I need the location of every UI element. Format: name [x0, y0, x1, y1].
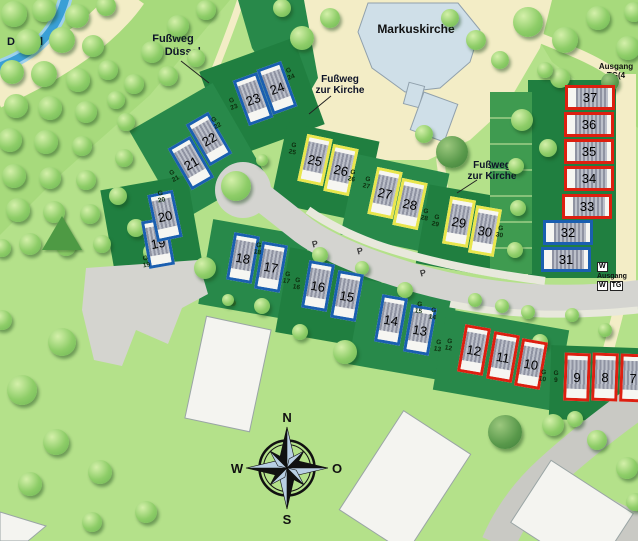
tree [65, 4, 89, 28]
garage-label: G 30 [493, 224, 507, 240]
tree [466, 30, 486, 50]
tree [436, 136, 468, 168]
tree [135, 501, 157, 523]
house-number: 34 [567, 169, 611, 188]
house-number: 25 [301, 137, 329, 182]
garage-label: G 17 [280, 270, 294, 286]
tree [2, 164, 26, 188]
exit-bottom-ausgang: Ausgang [597, 272, 638, 281]
tree [221, 171, 251, 201]
house-plot-34[interactable]: 34 [564, 166, 614, 191]
tree [586, 6, 610, 30]
tree [552, 27, 578, 53]
tree [495, 299, 509, 313]
tree [468, 293, 482, 307]
house-plot-35[interactable]: 35 [564, 139, 614, 164]
compass-north-label: N [282, 410, 291, 425]
tree [616, 36, 638, 60]
tree [320, 8, 340, 28]
tree [567, 411, 583, 427]
house-number: 31 [544, 250, 588, 269]
garage-label: G 19 [139, 254, 153, 270]
tree [15, 29, 41, 55]
tree [187, 49, 205, 67]
tree [82, 35, 104, 57]
house-number: 9 [566, 356, 587, 399]
tree [72, 136, 92, 156]
house-number: 35 [567, 142, 611, 161]
tree [34, 130, 58, 154]
footpath-church-upper-label: Fußweg zur Kirche [300, 74, 380, 96]
house-plot-32[interactable]: 32 [543, 220, 593, 245]
tree [80, 204, 100, 224]
house-number: 33 [565, 197, 609, 216]
tree [598, 323, 612, 337]
tree [508, 158, 524, 174]
tree [616, 457, 638, 479]
tree [158, 66, 178, 86]
house-number: 12 [461, 328, 488, 373]
tree [254, 298, 270, 314]
tree [290, 26, 314, 50]
tree [38, 96, 62, 120]
tree [565, 308, 579, 322]
garage-label: G 13 [431, 338, 445, 354]
w-marker-1: W [597, 262, 608, 272]
tree [167, 15, 189, 37]
tree [124, 74, 144, 94]
house-number: 29 [446, 200, 473, 245]
house-plot-9[interactable]: 9 [563, 353, 591, 402]
tree [141, 41, 163, 63]
garage-label: G 20 [154, 189, 168, 205]
tg-marker: TG [610, 281, 624, 291]
house-plot-37[interactable]: 37 [565, 85, 615, 110]
house-plot-7[interactable]: 7 [619, 354, 638, 403]
tree [333, 340, 357, 364]
tree [48, 328, 76, 356]
tree [7, 375, 37, 405]
tree [488, 415, 522, 449]
tree [256, 154, 268, 166]
house-number: 36 [567, 115, 611, 134]
tree [521, 305, 535, 319]
exit-top-line1: Ausgang [594, 62, 638, 71]
exit-bottom-right-label: W Ausgang W TG [597, 262, 638, 291]
tree [626, 493, 638, 511]
tree [510, 200, 526, 216]
tree [587, 430, 607, 450]
house-plot-31[interactable]: 31 [541, 247, 591, 272]
tree [31, 61, 57, 87]
tree [109, 187, 127, 205]
tree [4, 94, 28, 118]
tree [539, 139, 557, 157]
tree [18, 472, 42, 496]
tree [39, 167, 61, 189]
garage-label: G 10 [536, 368, 550, 384]
site-plan-map: Düssel Fußweg zur Düssel Markuskirche Fu… [0, 0, 638, 541]
tree [1, 1, 27, 27]
compass-south-label: S [283, 512, 292, 527]
tree [537, 62, 553, 78]
tree [107, 91, 125, 109]
house-plot-8[interactable]: 8 [591, 353, 619, 402]
house-number: 32 [546, 223, 590, 242]
tree [19, 233, 41, 255]
tree [117, 113, 135, 131]
house-plot-33[interactable]: 33 [562, 194, 612, 219]
tree [511, 109, 533, 131]
tree [88, 460, 112, 484]
tree [66, 68, 90, 92]
tree [93, 235, 111, 253]
conifer-tree [42, 216, 82, 250]
tree [98, 60, 118, 80]
footpath-church-upper-line2: zur Kirche [300, 85, 380, 96]
tree [542, 414, 564, 436]
house-number: 37 [568, 88, 612, 107]
tree [6, 198, 30, 222]
tree [0, 60, 24, 84]
tree [194, 257, 216, 279]
compass-east-label: O [332, 461, 342, 476]
tree [82, 512, 102, 532]
tree [115, 149, 133, 167]
tree [513, 7, 543, 37]
tree [441, 9, 459, 27]
tree [76, 170, 96, 190]
house-number: 15 [334, 274, 361, 319]
compass-west-label: W [231, 461, 244, 476]
footpath-church-upper-line1: Fußweg [300, 74, 380, 85]
house-number: 16 [305, 264, 332, 309]
tree [491, 51, 509, 69]
garage-label: G 9 [550, 370, 562, 384]
tree [292, 324, 308, 340]
house-number: 14 [378, 298, 405, 343]
house-number: 8 [594, 356, 615, 399]
paved-area [82, 260, 208, 366]
w-marker-2: W [597, 281, 608, 291]
compass-rose: N O S W [225, 406, 349, 535]
tree [49, 27, 75, 53]
garage-label: G 18 [251, 241, 265, 257]
garage-label: G 15 [412, 300, 426, 316]
house-number: 7 [622, 357, 638, 400]
compass-star [246, 427, 328, 509]
tree [397, 282, 413, 298]
house-plot-36[interactable]: 36 [564, 112, 614, 137]
tree [415, 125, 433, 143]
tree [222, 294, 234, 306]
house-number: 11 [490, 335, 517, 380]
tree [507, 242, 523, 258]
tree [624, 2, 638, 22]
garage-label: G 14 [426, 306, 440, 322]
tree [43, 429, 69, 455]
tree [75, 101, 97, 123]
tree [196, 0, 216, 20]
